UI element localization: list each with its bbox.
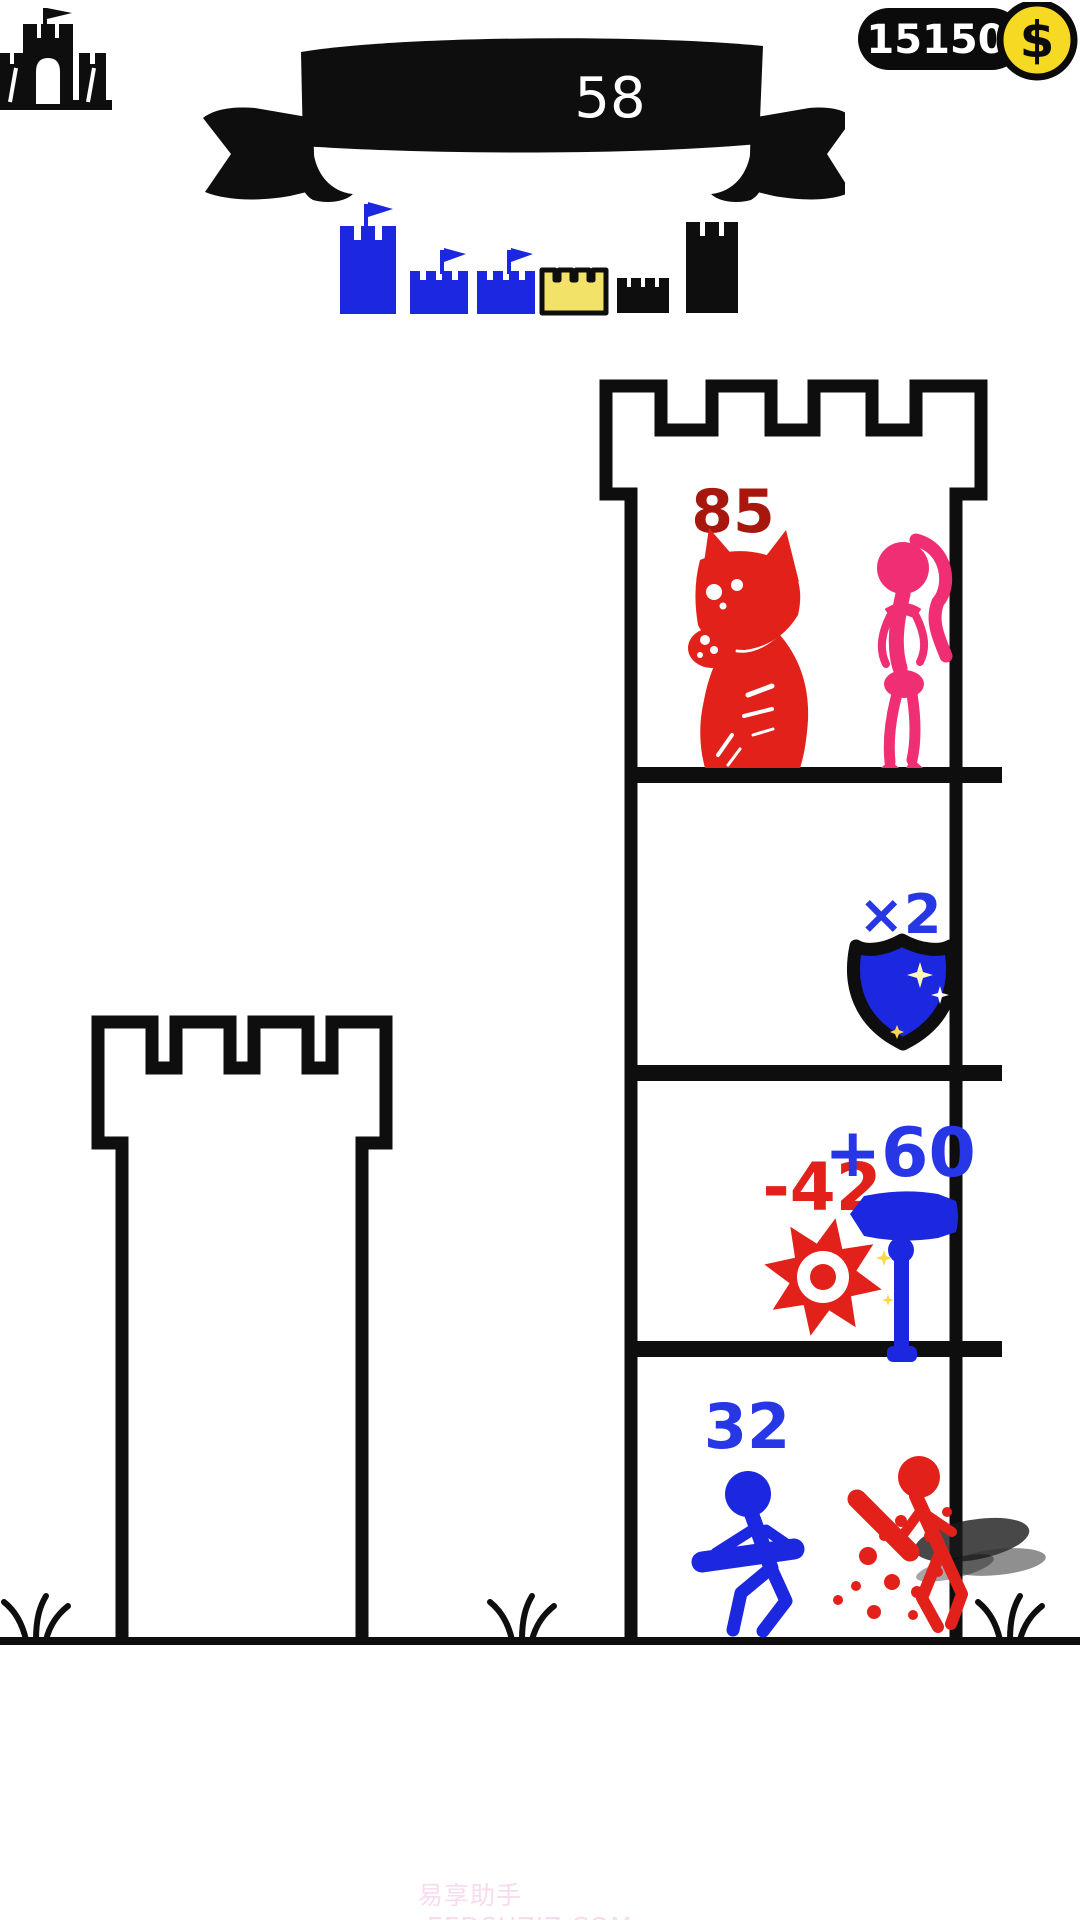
level-banner: 58	[195, 22, 845, 207]
level-number: 58	[574, 66, 645, 131]
grass-tuft-left	[4, 1596, 68, 1640]
ribbon-banner-icon	[203, 38, 845, 202]
small-blue-castle-icon	[477, 248, 535, 314]
grass-tuft-middle	[490, 1596, 554, 1640]
left-castle	[98, 1022, 386, 1637]
battle-scene[interactable]: 85	[0, 0, 1080, 1920]
large-blue-castle-icon	[340, 202, 396, 314]
game-screen: 85	[0, 0, 1080, 1920]
floor-enemy-hp: 85	[691, 477, 775, 547]
grass-tuft-right	[978, 1596, 1042, 1640]
level-progress-row	[340, 202, 738, 314]
coin-amount: 15150	[866, 17, 1005, 63]
tall-black-castle-icon	[686, 222, 738, 313]
small-blue-castle-icon	[410, 248, 468, 314]
fighter-power-label: 32	[704, 1390, 790, 1463]
small-black-castle-icon	[617, 278, 669, 313]
castle-home-button[interactable]	[0, 6, 130, 114]
coin-counter[interactable]: 15150 $	[850, 2, 1080, 86]
castle-icon	[0, 6, 130, 114]
bonus-label: +60	[824, 1114, 976, 1193]
coin-icon: $	[1000, 3, 1074, 77]
watermark: 易享助手·EEDSHZJZ.COM	[418, 1876, 718, 1920]
floor-shield-bonus: ×2	[853, 883, 952, 1044]
dollar-sign: $	[1020, 11, 1055, 69]
current-yellow-castle-icon	[542, 270, 606, 313]
